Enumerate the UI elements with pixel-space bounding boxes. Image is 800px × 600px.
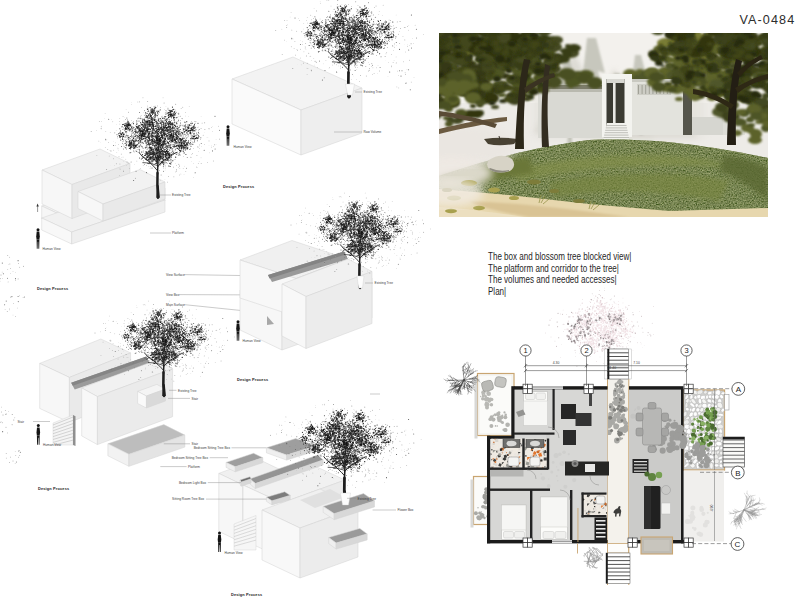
svg-text:Design Process: Design Process [38, 486, 69, 491]
svg-text:VA-0484: VA-0484 [740, 13, 796, 27]
svg-text:Sitting Room Tree Box: Sitting Room Tree Box [172, 497, 204, 501]
svg-text:Design Process: Design Process [237, 377, 268, 382]
svg-text:Existing Tree: Existing Tree [358, 497, 377, 501]
svg-text:B: B [735, 469, 740, 478]
svg-text:Stair: Stair [17, 420, 24, 424]
svg-text:Bedroom Sitting Tree Box: Bedroom Sitting Tree Box [172, 456, 209, 460]
svg-text:Existing Tree: Existing Tree [364, 90, 383, 94]
svg-text:Plan|: Plan| [488, 285, 506, 297]
svg-text:Stair: Stair [192, 397, 199, 401]
svg-text:A: A [736, 385, 742, 394]
svg-text:Existing Tree: Existing Tree [375, 281, 394, 285]
svg-text:Existing Tree: Existing Tree [178, 389, 197, 393]
svg-text:View Box: View Box [166, 293, 180, 297]
svg-text:Human View: Human View [234, 145, 253, 149]
svg-text:Flower Box: Flower Box [398, 508, 414, 512]
svg-text:The volumes and needed accesse: The volumes and needed accesses| [488, 273, 617, 285]
svg-text:Human View: Human View [225, 551, 244, 555]
svg-text:View Surface: View Surface [166, 273, 185, 277]
svg-text:C: C [735, 540, 741, 549]
svg-text:2: 2 [584, 346, 588, 355]
svg-text:1: 1 [523, 346, 527, 355]
svg-text:Platform: Platform [172, 231, 184, 235]
svg-text:Design Process: Design Process [223, 184, 254, 189]
svg-text:Human View: Human View [43, 443, 62, 447]
svg-text:The platform and corridor to t: The platform and corridor to the tree| [488, 262, 619, 274]
svg-text:Design Process: Design Process [37, 286, 68, 291]
svg-text:11.40: 11.40 [608, 366, 616, 370]
svg-text:Main Surface: Main Surface [166, 303, 185, 307]
svg-text:Human View: Human View [43, 247, 62, 251]
svg-text:Platform: Platform [188, 465, 200, 469]
svg-text:The box and blossom tree block: The box and blossom tree blocked view| [488, 250, 631, 262]
svg-text:3: 3 [684, 346, 688, 355]
svg-text:Raw Volume: Raw Volume [364, 130, 382, 134]
svg-text:4.30: 4.30 [553, 361, 560, 365]
svg-text:Existing Tree: Existing Tree [172, 193, 191, 197]
svg-text:Bedroom Light Box: Bedroom Light Box [179, 481, 207, 485]
svg-text:Design Process: Design Process [231, 592, 262, 597]
svg-text:4.90: 4.90 [710, 505, 714, 512]
svg-text:Bedroom Sitting Tree Box: Bedroom Sitting Tree Box [194, 446, 231, 450]
svg-text:7.10: 7.10 [633, 361, 640, 365]
svg-text:Human View: Human View [243, 339, 262, 343]
